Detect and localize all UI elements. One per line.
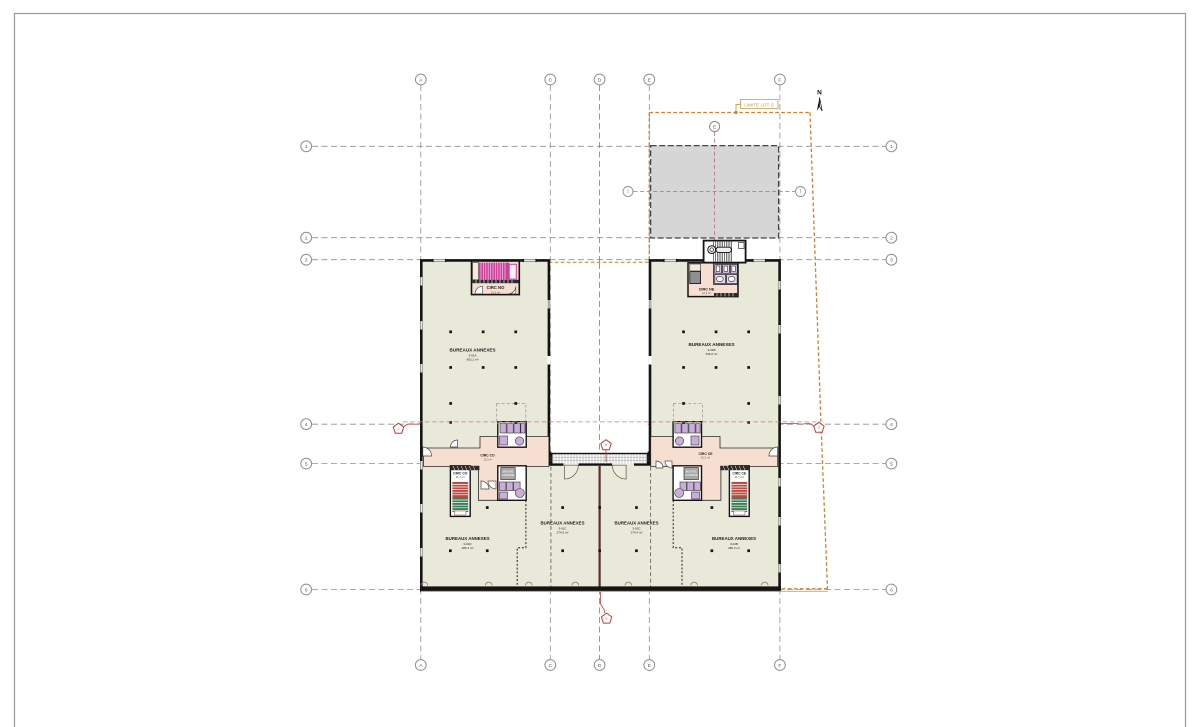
svg-text:11.5 m²: 11.5 m²	[491, 290, 500, 294]
svg-text:112 m²: 112 m²	[483, 457, 492, 461]
svg-text:BUREAUX ANNEXES: BUREAUX ANNEXES	[712, 536, 756, 541]
svg-text:D: D	[818, 426, 820, 430]
svg-text:D: D	[598, 77, 602, 83]
svg-text:C: C	[549, 77, 553, 83]
svg-text:BUREAUX ANNEXES: BUREAUX ANNEXES	[449, 348, 495, 353]
svg-text:11.7 m²: 11.7 m²	[735, 475, 744, 479]
svg-text:F: F	[778, 77, 781, 83]
svg-text:1: 1	[305, 144, 308, 150]
svg-text:3: 3	[305, 258, 308, 264]
svg-text:D: D	[598, 663, 602, 669]
svg-text:546.6 m²: 546.6 m²	[706, 352, 718, 356]
svg-text:4: 4	[305, 422, 308, 428]
svg-text:BUREAUX ANNEXES: BUREAUX ANNEXES	[541, 521, 585, 526]
svg-text:286.3 m²: 286.3 m²	[462, 546, 474, 550]
svg-text:N: N	[817, 90, 822, 97]
svg-text:5: 5	[305, 461, 308, 467]
svg-text:6: 6	[890, 587, 893, 593]
svg-text:CIRC NE: CIRC NE	[699, 287, 715, 291]
svg-text:6: 6	[305, 587, 308, 593]
svg-text:1: 1	[890, 144, 893, 150]
svg-text:BUREAUX ANNEXES: BUREAUX ANNEXES	[615, 521, 659, 526]
svg-text:602.1 m²: 602.1 m²	[467, 358, 479, 362]
svg-text:12.3 m²: 12.3 m²	[702, 291, 711, 295]
svg-text:BUREAUX ANNEXES: BUREAUX ANNEXES	[446, 536, 490, 541]
svg-text:E: E	[648, 77, 651, 83]
svg-text:C: C	[549, 663, 553, 669]
svg-text:2: 2	[305, 236, 308, 242]
svg-text:4: 4	[890, 422, 893, 428]
svg-text:274.0 m²: 274.0 m²	[557, 531, 569, 535]
svg-text:CHARGE: CHARGE	[502, 473, 515, 477]
svg-text:2: 2	[890, 236, 893, 242]
svg-text:3: 3	[890, 258, 893, 264]
svg-text:BUREAUX ANNEXES: BUREAUX ANNEXES	[688, 342, 734, 347]
svg-text:274.4 m²: 274.4 m²	[631, 531, 643, 535]
svg-text:5: 5	[890, 461, 893, 467]
svg-text:E: E	[713, 124, 716, 130]
svg-text:286.3 m²: 286.3 m²	[728, 546, 740, 550]
svg-text:D: D	[606, 616, 608, 620]
svg-text:LIMITE LOT G: LIMITE LOT G	[744, 102, 774, 107]
svg-text:11.7 m²: 11.7 m²	[456, 475, 465, 479]
svg-text:D: D	[398, 427, 400, 431]
svg-text:F: F	[778, 663, 781, 669]
svg-text:D: D	[605, 443, 607, 447]
svg-text:E: E	[648, 663, 651, 669]
svg-text:CHARGE: CHARGE	[685, 473, 698, 477]
svg-text:61.2 m²: 61.2 m²	[701, 456, 711, 460]
